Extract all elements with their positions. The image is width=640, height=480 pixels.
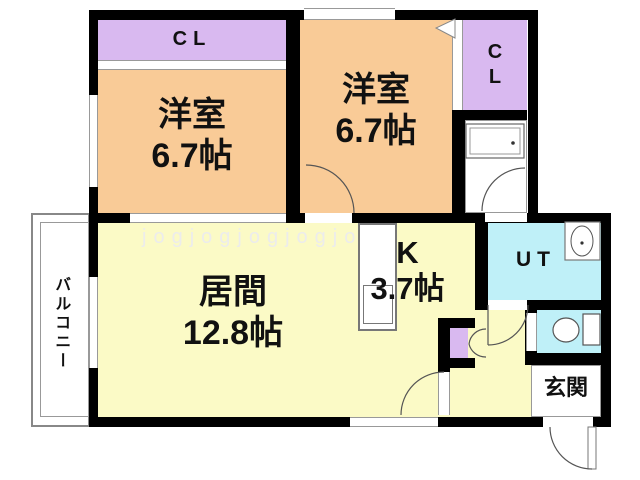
room-size: 3.7帖: [345, 271, 470, 307]
cabinet-handle-icon: [511, 141, 515, 145]
door-swing-arc: [306, 165, 354, 213]
room-size: 6.7帖: [98, 136, 286, 177]
toilet-bowl: [553, 318, 579, 342]
door-swing-arc: [550, 427, 592, 469]
room-size: 12.8帖: [98, 313, 368, 354]
label-utility: UT: [500, 247, 572, 272]
room-name: 居間: [98, 272, 368, 313]
room-name: 洋室: [98, 95, 286, 136]
storage-cabinet: [466, 124, 524, 158]
washbasin-bowl: [571, 226, 593, 256]
label-living: 居間 12.8帖: [98, 272, 368, 354]
door-swing-arc: [401, 372, 444, 415]
door-swing-arc: [488, 305, 528, 345]
label-closet-right: C L: [463, 40, 527, 90]
label-entrance: 玄関: [531, 375, 601, 401]
room-size: 6.7帖: [300, 111, 452, 152]
label-bedroom-right: 洋室 6.7帖: [300, 70, 452, 152]
room-name: 洋室: [300, 70, 452, 111]
bifold-door-icon: [469, 329, 486, 344]
room-name: K: [345, 235, 470, 271]
label-balcony: バルコニー: [51, 253, 70, 393]
label-closet-top: CL: [98, 27, 286, 51]
door-swing-arc: [482, 168, 525, 211]
watermark: jogjogjogjogjo: [142, 226, 362, 249]
door-direction-triangle-icon: [436, 19, 455, 38]
label-bedroom-left: 洋室 6.7帖: [98, 95, 286, 177]
toilet-tank: [583, 314, 600, 345]
entrance-door: [588, 427, 596, 469]
washbasin-drain-icon: [580, 241, 583, 244]
label-kitchen: K 3.7帖: [345, 235, 470, 306]
bifold-door-icon: [469, 344, 486, 357]
floor-plan: jogjogjogjogjo CL 洋室 6.7帖 洋室 6.7帖 C L 居間…: [0, 0, 640, 480]
